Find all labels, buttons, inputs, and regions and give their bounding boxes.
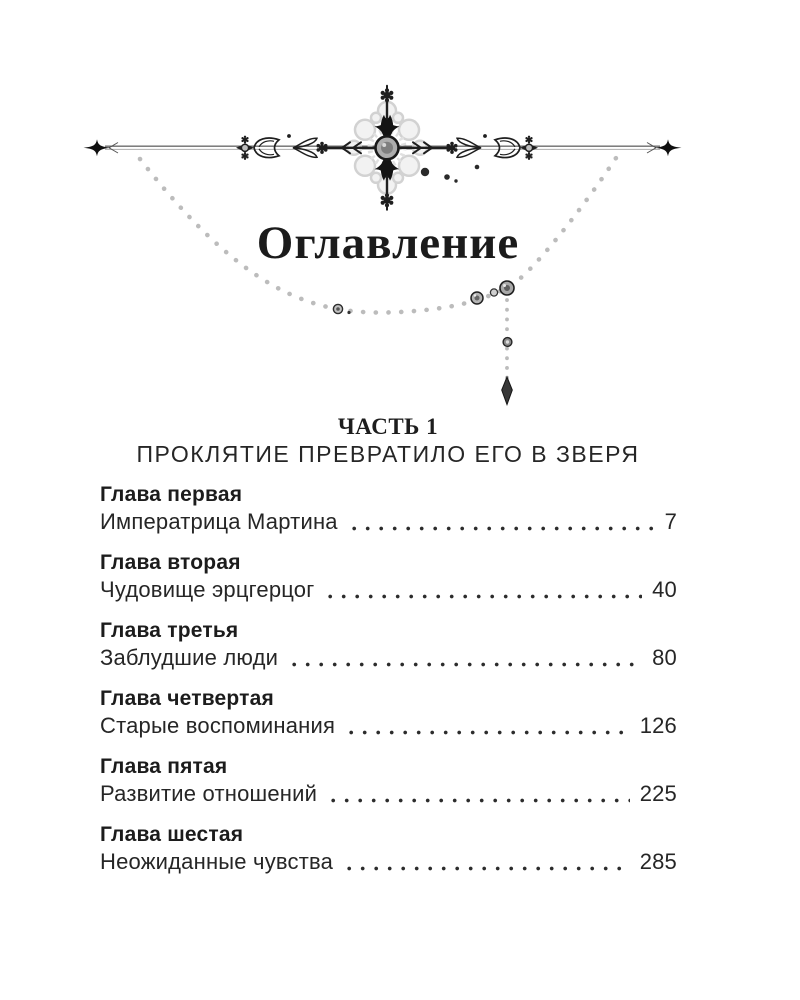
leader-dots xyxy=(328,594,642,599)
part-subtitle: ПРОКЛЯТИЕ ПРЕВРАТИЛО ЕГО В ЗВЕРЯ xyxy=(0,441,776,467)
chapter-title: Старые воспоминания xyxy=(100,712,335,739)
garland-jewel-small xyxy=(333,304,342,313)
chapter-title: Неожиданные чувства xyxy=(100,848,333,875)
chapter-page-number: 126 xyxy=(640,712,677,739)
left-sparkle-icon xyxy=(84,139,111,156)
jewel-pendant xyxy=(502,300,513,405)
chapter-heading: Глава пятая xyxy=(100,754,677,780)
header-ornament xyxy=(0,0,800,410)
chapter-row: Заблудшие люди80 xyxy=(100,644,677,671)
chapter-heading: Глава третья xyxy=(100,618,677,644)
chapter-row: Неожиданные чувства285 xyxy=(100,848,677,875)
page-title: Оглавление xyxy=(0,219,776,267)
pendant-drop-icon xyxy=(502,377,513,405)
chapter-heading: Глава первая xyxy=(100,482,677,508)
chapter-title: Чудовище эрцгерцог xyxy=(100,576,314,603)
chapter-row: Императрица Мартина7 xyxy=(100,508,677,535)
chapter-block: Глава перваяИмператрица Мартина7 xyxy=(100,482,677,535)
garland-jewel-large xyxy=(500,281,514,295)
header-ornament-svg xyxy=(0,0,800,410)
leader-dots xyxy=(349,730,630,735)
chapter-block: Глава шестаяНеожиданные чувства285 xyxy=(100,822,677,875)
garland-jewel-medium xyxy=(471,292,483,304)
garland-bead xyxy=(490,289,497,296)
leader-dots xyxy=(352,526,655,531)
chapter-block: Глава четвертаяСтарые воспоминания126 xyxy=(100,686,677,739)
chapter-heading: Глава шестая xyxy=(100,822,677,848)
chapter-block: Глава втораяЧудовище эрцгерцог40 xyxy=(100,550,677,603)
chapter-page-number: 7 xyxy=(665,508,677,535)
chapter-heading: Глава вторая xyxy=(100,550,677,576)
chapter-heading: Глава четвертая xyxy=(100,686,677,712)
ink-specks xyxy=(421,165,480,183)
chapter-row: Старые воспоминания126 xyxy=(100,712,677,739)
leader-dots xyxy=(331,798,630,803)
left-flourish-cluster xyxy=(236,134,328,160)
chapter-block: Глава пятаяРазвитие отношений225 xyxy=(100,754,677,807)
right-sparkle-icon xyxy=(655,139,682,156)
chapter-page-number: 40 xyxy=(652,576,677,603)
part-label: ЧАСТЬ 1 xyxy=(0,414,776,440)
chapter-row: Развитие отношений225 xyxy=(100,780,677,807)
chapter-row: Чудовище эрцгерцог40 xyxy=(100,576,677,603)
floral-cross-icon xyxy=(325,86,449,210)
leader-dots xyxy=(292,662,642,667)
chapter-page-number: 285 xyxy=(640,848,677,875)
chapter-title: Развитие отношений xyxy=(100,780,317,807)
right-flourish-cluster xyxy=(446,134,538,160)
chapter-title: Императрица Мартина xyxy=(100,508,338,535)
chapter-page-number: 225 xyxy=(640,780,677,807)
book-contents-page: { "document": { "title": "Оглавление", "… xyxy=(0,0,800,1000)
chapter-block: Глава третьяЗаблудшие люди80 xyxy=(100,618,677,671)
chapter-page-number: 80 xyxy=(652,644,677,671)
chapter-title: Заблудшие люди xyxy=(100,644,278,671)
chapter-list: Глава перваяИмператрица Мартина7Глава вт… xyxy=(100,482,677,890)
leader-dots xyxy=(347,866,630,871)
